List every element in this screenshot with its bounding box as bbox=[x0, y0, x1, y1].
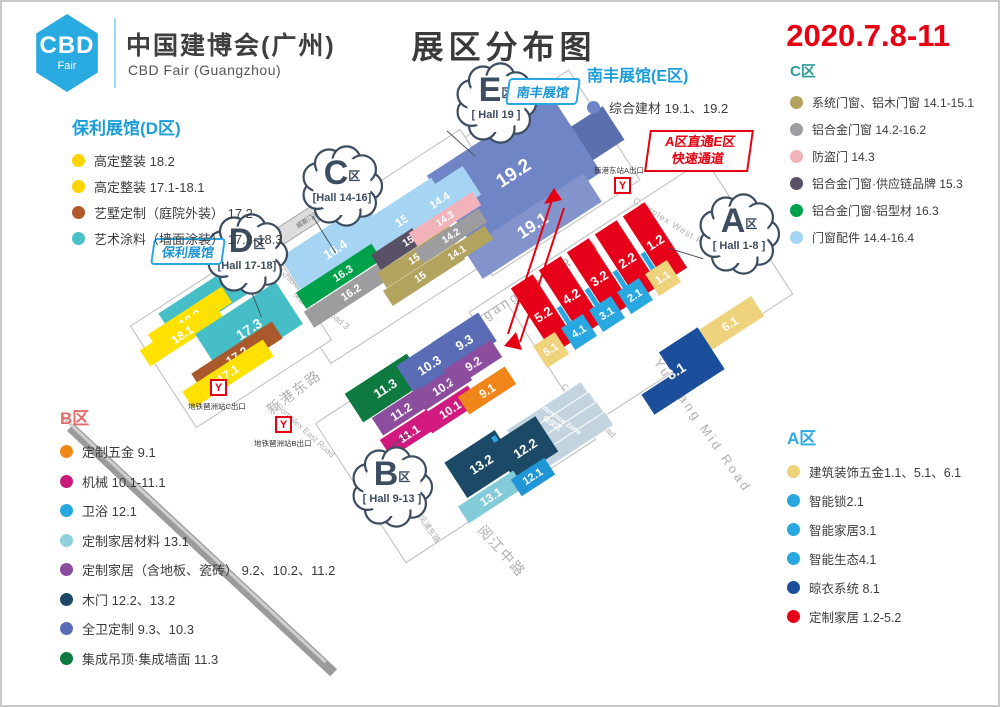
metro-exit-icon: Y bbox=[210, 379, 227, 396]
legend-item: 铝合金门窗·铝型材 16.3 bbox=[790, 197, 974, 224]
zone-hall-range: [ Hall 1-8 ] bbox=[695, 240, 783, 252]
legend-color-dot bbox=[72, 180, 85, 193]
legend-color-dot bbox=[787, 523, 800, 536]
legend-color-dot bbox=[787, 494, 800, 507]
legend-item-label: 艺术涂料（墙面涂装） 17.3-18.3 bbox=[94, 229, 283, 248]
event-dates: 2020.7.8-11 bbox=[786, 18, 950, 54]
zone-letter: B区 bbox=[348, 457, 436, 491]
legend-item-label: 全卫定制 9.3、10.3 bbox=[82, 619, 194, 638]
legend-color-dot bbox=[60, 504, 73, 517]
legend-item-label: 高定整装 17.1-18.1 bbox=[94, 177, 205, 196]
legend-item-label: 铝合金门窗 14.2-16.2 bbox=[812, 121, 926, 138]
legend-c: C区系统门窗、铝木门窗 14.1-15.1铝合金门窗 14.2-16.2防盗门 … bbox=[790, 60, 974, 251]
zone-badge-C: C区[Hall 14-16] bbox=[298, 142, 386, 230]
legend-item: 定制家居材料 13.1 bbox=[60, 526, 335, 556]
legend-item: 铝合金门窗 14.2-16.2 bbox=[790, 116, 974, 143]
legend-item-label: 晾衣系统 8.1 bbox=[809, 578, 880, 597]
brand-subtitle: CBD Fair (Guangzhou) bbox=[128, 62, 281, 78]
legend-color-dot bbox=[60, 593, 73, 606]
legend-item-label: 系统门窗、铝木门窗 14.1-15.1 bbox=[812, 94, 974, 111]
pavilion-tag: 南丰展馆 bbox=[505, 78, 581, 105]
legend-title: A区 bbox=[787, 424, 961, 449]
legend-color-dot bbox=[60, 534, 73, 547]
legend-color-dot bbox=[72, 206, 85, 219]
legend-color-dot bbox=[790, 96, 803, 109]
legend-item: 晾衣系统 8.1 bbox=[787, 573, 961, 602]
legend-item-label: 智能生态4.1 bbox=[809, 549, 876, 568]
legend-item: 艺墅定制（庭院外装） 17.2 bbox=[72, 199, 283, 225]
legend-title: 南丰展馆(E区) bbox=[587, 62, 728, 86]
zone-badge-B: B区[ Hall 9-13 ] bbox=[348, 443, 436, 531]
legend-item-label: 机械 10.1-11.1 bbox=[82, 472, 166, 491]
legend-item-label: 建筑装饰五金1.1、5.1、6.1 bbox=[809, 462, 961, 481]
legend-color-dot bbox=[72, 154, 85, 167]
legend-color-dot bbox=[72, 232, 85, 245]
legend-item: 智能家居3.1 bbox=[787, 515, 961, 544]
legend-color-dot bbox=[787, 552, 800, 565]
legend-item-label: 综合建材 19.1、19.2 bbox=[609, 98, 728, 117]
legend-item-label: 定制五金 9.1 bbox=[82, 442, 156, 461]
legend-item: 防盗门 14.3 bbox=[790, 143, 974, 170]
legend-item-label: 艺墅定制（庭院外装） 17.2 bbox=[94, 203, 253, 222]
legend-color-dot bbox=[787, 465, 800, 478]
legend-item-label: 智能锁2.1 bbox=[809, 491, 864, 510]
legend-item-label: 铝合金门窗·供应链品牌 15.3 bbox=[812, 175, 963, 192]
legend-item: 高定整装 17.1-18.1 bbox=[72, 173, 283, 199]
legend-item-label: 定制家居 1.2-5.2 bbox=[809, 607, 901, 626]
legend-a: A区建筑装饰五金1.1、5.1、6.1智能锁2.1智能家居3.1智能生态4.1晾… bbox=[787, 424, 961, 631]
legend-item-label: 木门 12.2、13.2 bbox=[82, 590, 175, 609]
metro-exit-icon: Y bbox=[614, 177, 631, 194]
legend-item: 机械 10.1-11.1 bbox=[60, 467, 335, 497]
legend-d: 保利展馆(D区)高定整装 18.2高定整装 17.1-18.1艺墅定制（庭院外装… bbox=[72, 114, 283, 251]
legend-item: 集成吊顶·集成墙面 11.3 bbox=[60, 644, 335, 674]
brand-title: 中国建博会(广州) bbox=[126, 26, 336, 62]
legend-color-dot bbox=[790, 231, 803, 244]
legend-item: 建筑装饰五金1.1、5.1、6.1 bbox=[787, 457, 961, 486]
legend-color-dot bbox=[790, 150, 803, 163]
legend-item-label: 铝合金门窗·铝型材 16.3 bbox=[812, 202, 939, 219]
legend-color-dot bbox=[60, 445, 73, 458]
legend-color-dot bbox=[60, 652, 73, 665]
header-divider bbox=[114, 18, 116, 88]
legend-color-dot bbox=[787, 610, 800, 623]
legend-color-dot bbox=[60, 563, 73, 576]
legend-item: 艺术涂料（墙面涂装） 17.3-18.3 bbox=[72, 225, 283, 251]
legend-e: 南丰展馆(E区)综合建材 19.1、19.2 bbox=[587, 62, 728, 120]
legend-item-label: 定制家居材料 13.1 bbox=[82, 531, 189, 550]
legend-color-dot bbox=[60, 475, 73, 488]
legend-item: 卫浴 12.1 bbox=[60, 496, 335, 526]
zone-hall-range: [Hall 14-16] bbox=[298, 192, 386, 204]
legend-b: B区定制五金 9.1机械 10.1-11.1卫浴 12.1定制家居材料 13.1… bbox=[60, 404, 335, 673]
legend-item: 定制五金 9.1 bbox=[60, 437, 335, 467]
legend-item-label: 定制家居（含地板、瓷砖） 9.2、10.2、11.2 bbox=[82, 560, 335, 579]
legend-item-label: 高定整装 18.2 bbox=[94, 151, 175, 170]
express-corridor-arrow bbox=[488, 186, 576, 356]
legend-item: 定制家居（含地板、瓷砖） 9.2、10.2、11.2 bbox=[60, 555, 335, 585]
legend-item: 高定整装 18.2 bbox=[72, 147, 283, 173]
legend-title: C区 bbox=[790, 60, 974, 81]
legend-item-label: 卫浴 12.1 bbox=[82, 501, 137, 520]
legend-item: 门窗配件 14.4-16.4 bbox=[790, 224, 974, 251]
legend-item-label: 集成吊顶·集成墙面 11.3 bbox=[82, 649, 218, 668]
logo-text: CBD bbox=[40, 34, 95, 58]
legend-item: 智能锁2.1 bbox=[787, 486, 961, 515]
legend-item: 木门 12.2、13.2 bbox=[60, 585, 335, 615]
legend-item: 系统门窗、铝木门窗 14.1-15.1 bbox=[790, 89, 974, 116]
legend-color-dot bbox=[587, 101, 600, 114]
legend-color-dot bbox=[60, 622, 73, 635]
zone-hall-range: [ Hall 9-13 ] bbox=[348, 493, 436, 505]
legend-item: 综合建材 19.1、19.2 bbox=[587, 94, 728, 120]
legend-item: 全卫定制 9.3、10.3 bbox=[60, 614, 335, 644]
legend-item-label: 智能家居3.1 bbox=[809, 520, 876, 539]
legend-item: 智能生态4.1 bbox=[787, 544, 961, 573]
cbd-fair-logo: CBD Fair bbox=[32, 14, 102, 92]
exhibition-map-page: CBD Fair 中国建博会(广州) CBD Fair (Guangzhou) … bbox=[0, 0, 1000, 707]
legend-item: 铝合金门窗·供应链品牌 15.3 bbox=[790, 170, 974, 197]
zone-hall-range: [ Hall 19 ] bbox=[452, 109, 540, 121]
legend-color-dot bbox=[790, 177, 803, 190]
zone-letter: A区 bbox=[695, 204, 783, 238]
legend-title: 保利展馆(D区) bbox=[72, 114, 283, 139]
legend-color-dot bbox=[790, 204, 803, 217]
road-label: 阅江中路 bbox=[475, 522, 530, 580]
zone-letter: C区 bbox=[298, 156, 386, 190]
legend-color-dot bbox=[790, 123, 803, 136]
legend-item: 定制家居 1.2-5.2 bbox=[787, 602, 961, 631]
metro-exit-label: 新港东站A出口 bbox=[594, 165, 644, 176]
express-corridor-label: A区直通E区快速通道 bbox=[644, 130, 754, 172]
legend-item-label: 门窗配件 14.4-16.4 bbox=[812, 229, 914, 246]
legend-item-label: 防盗门 14.3 bbox=[812, 148, 875, 165]
legend-title: B区 bbox=[60, 404, 335, 429]
zone-badge-A: A区[ Hall 1-8 ] bbox=[695, 190, 783, 278]
legend-color-dot bbox=[787, 581, 800, 594]
